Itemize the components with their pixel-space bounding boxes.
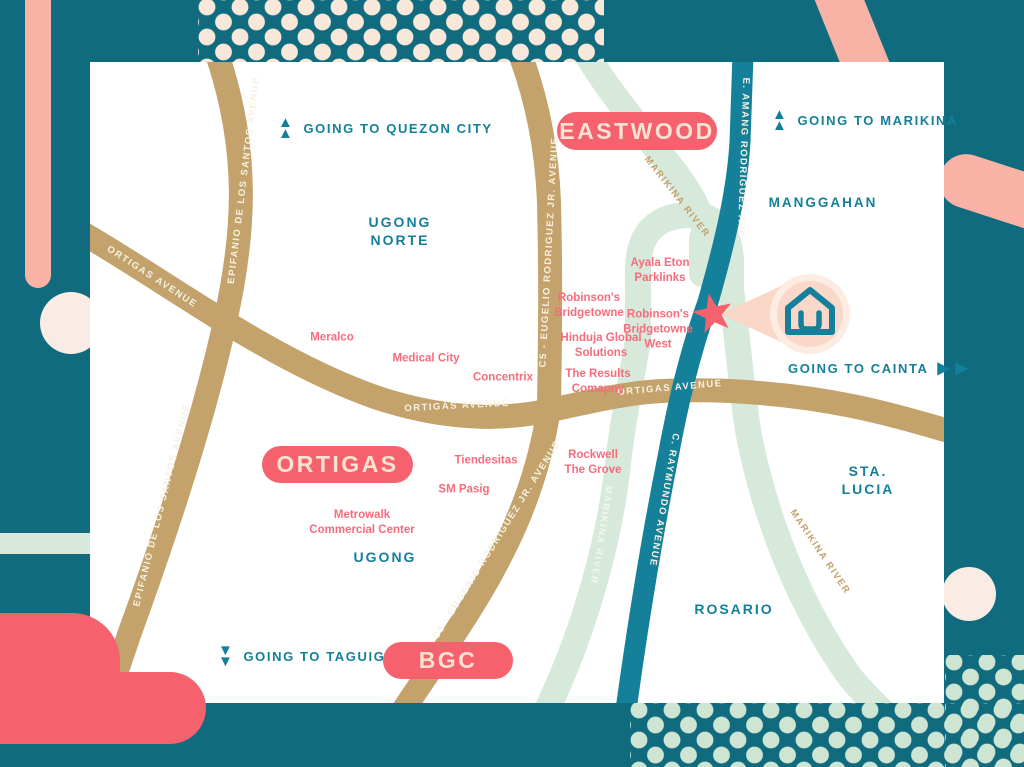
up-arrows-icon: ▲▲ — [278, 118, 294, 140]
direction-label: GOING TO CAINTA — [788, 361, 929, 376]
cream-circle-right-decoration — [942, 567, 996, 621]
badge-eastwood: EASTWOOD — [557, 112, 717, 150]
poi-concentrix: Concentrix — [473, 371, 533, 386]
direction-taguig: ▼▼ GOING TO TAGUIG — [218, 646, 385, 668]
down-arrows-icon: ▼▼ — [218, 646, 234, 668]
direction-marikina: ▲▲ GOING TO MARIKINA — [772, 110, 958, 132]
mint-stripe-left-decoration — [0, 533, 91, 554]
poi-ayala-eton-parklinks: Ayala Eton Parklinks — [630, 256, 689, 286]
district-manggahan: MANGGAHAN — [769, 194, 878, 212]
district-ugong: UGONG — [354, 548, 417, 566]
direction-label: GOING TO QUEZON CITY — [303, 121, 492, 136]
pink-arc-right-decoration — [932, 147, 1024, 231]
poi-meralco: Meralco — [310, 331, 353, 346]
direction-label: GOING TO TAGUIG — [243, 649, 385, 664]
district-rosario: ROSARIO — [694, 600, 773, 618]
badge-ortigas: ORTIGAS — [262, 446, 413, 483]
pink-stripe-decoration — [25, 0, 51, 288]
poi-hinduja-global-solutions: Hinduja Global Solutions — [560, 331, 641, 361]
up-arrows-icon: ▲▲ — [772, 110, 788, 132]
poi-medical-city: Medical City — [392, 352, 459, 367]
direction-quezon-city: ▲▲ GOING TO QUEZON CITY — [278, 118, 493, 140]
poi-sm-pasig: SM Pasig — [438, 483, 489, 498]
direction-label: GOING TO MARIKINA — [797, 113, 958, 128]
direction-cainta: GOING TO CAINTA ▶▶ — [788, 358, 969, 378]
district-sta-lucia: STA. LUCIA — [830, 462, 906, 498]
poi-the-results-company: The Results Comapny — [565, 367, 630, 397]
vicinity-map-poster: EPIFANIO DE LOS SANTOS AVENUE EPIFANIO D… — [0, 0, 1024, 767]
coral-blob-wide-decoration — [0, 672, 206, 744]
poi-rockwell-the-grove: Rockwell The Grove — [565, 448, 622, 478]
polka-dots-right-decoration — [945, 655, 1024, 767]
district-ugong-norte: UGONG NORTE — [369, 213, 432, 249]
poi-metrowalk: Metrowalk Commercial Center — [309, 508, 414, 538]
badge-bgc: BGC — [383, 642, 513, 679]
right-arrows-icon: ▶▶ — [938, 358, 970, 378]
poi-robinsons-bridgetowne: Robinson's Bridgetowne — [554, 291, 624, 321]
map-canvas: EPIFANIO DE LOS SANTOS AVENUE EPIFANIO D… — [90, 62, 944, 703]
edsa-road-path — [98, 62, 241, 703]
polka-dots-top-decoration — [198, 0, 604, 62]
poi-tiendesitas: Tiendesitas — [454, 454, 517, 469]
